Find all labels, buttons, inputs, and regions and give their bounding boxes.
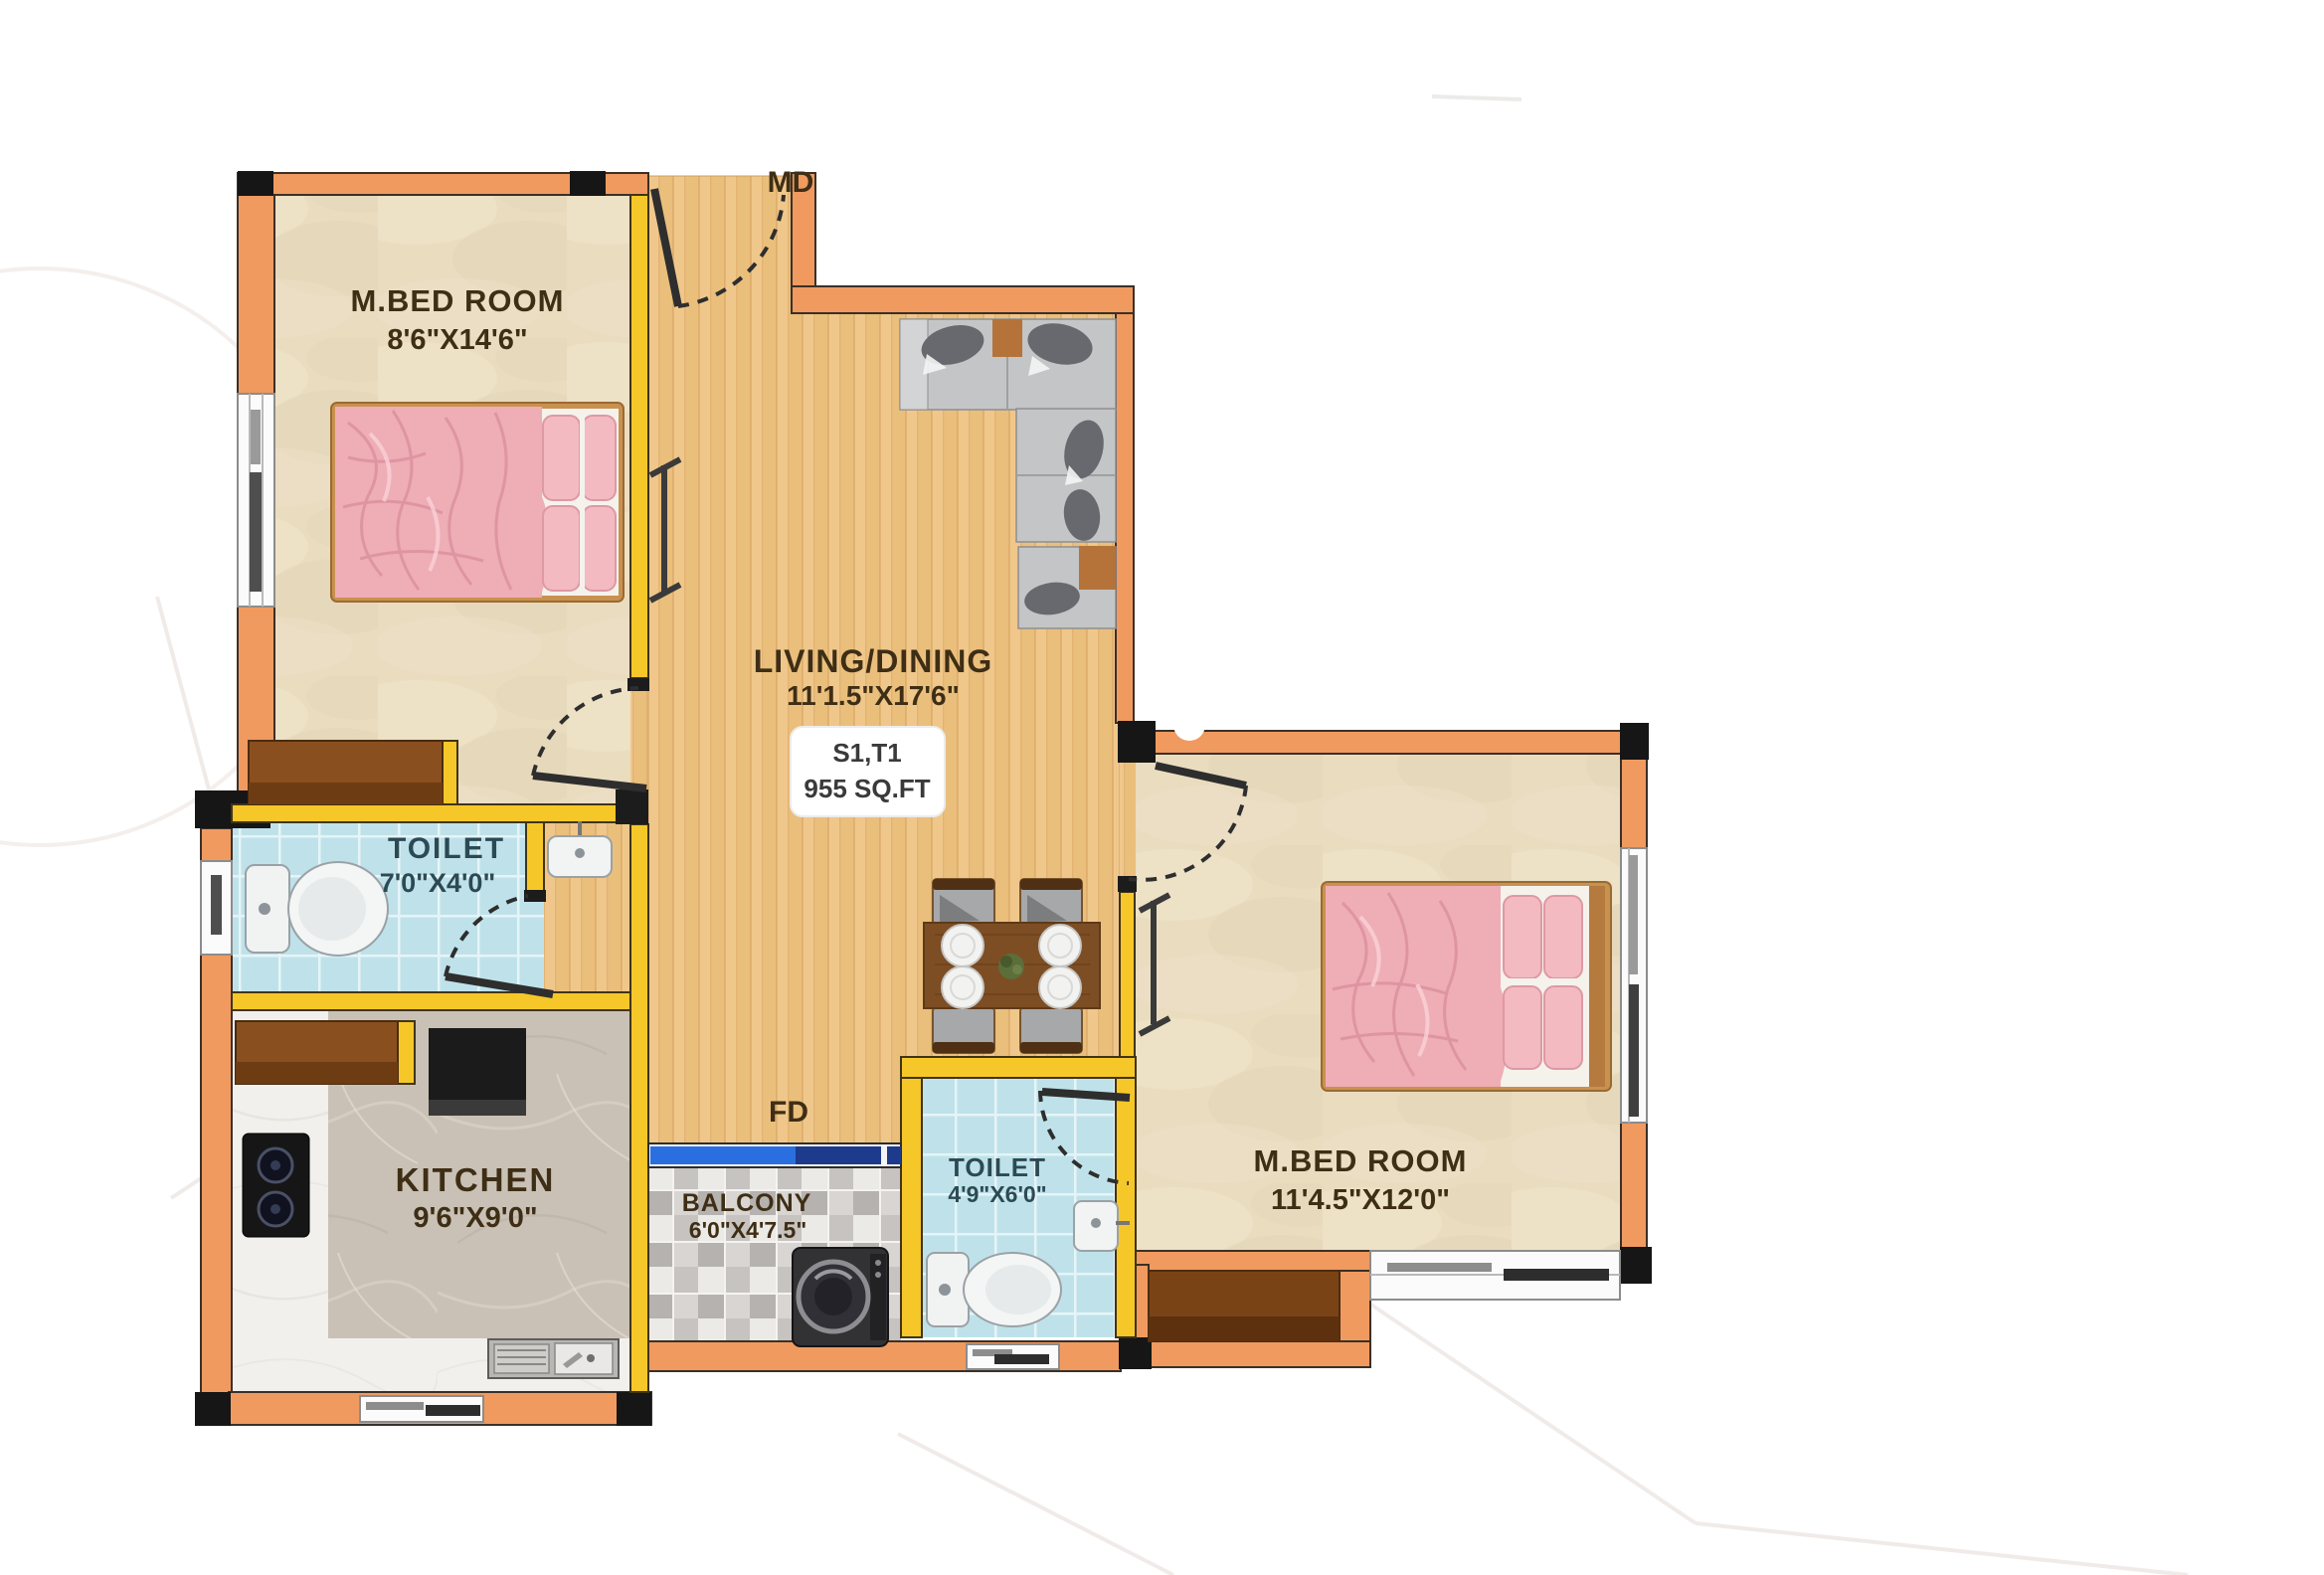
svg-text:LIVING/DINING: LIVING/DINING	[754, 643, 993, 679]
svg-text:M.BED ROOM: M.BED ROOM	[351, 283, 565, 318]
svg-text:6'0"X4'7.5": 6'0"X4'7.5"	[689, 1217, 806, 1243]
svg-text:9'6"X9'0": 9'6"X9'0"	[413, 1202, 537, 1234]
svg-text:11'1.5"X17'6": 11'1.5"X17'6"	[787, 680, 960, 711]
svg-text:7'0"X4'0": 7'0"X4'0"	[380, 868, 496, 898]
svg-text:8'6"X14'6": 8'6"X14'6"	[387, 324, 527, 356]
svg-text:S1,T1: S1,T1	[832, 738, 901, 768]
svg-text:4'9"X6'0": 4'9"X6'0"	[948, 1181, 1046, 1207]
svg-text:M.BED ROOM: M.BED ROOM	[1254, 1143, 1468, 1178]
svg-text:FD: FD	[769, 1096, 808, 1129]
svg-text:KITCHEN: KITCHEN	[396, 1161, 556, 1198]
svg-text:MD: MD	[768, 166, 814, 199]
svg-text:11'4.5"X12'0": 11'4.5"X12'0"	[1271, 1184, 1450, 1216]
svg-text:955 SQ.FT: 955 SQ.FT	[804, 774, 930, 803]
svg-text:BALCONY: BALCONY	[682, 1189, 812, 1217]
svg-text:TOILET: TOILET	[388, 832, 505, 865]
svg-text:TOILET: TOILET	[949, 1152, 1046, 1182]
